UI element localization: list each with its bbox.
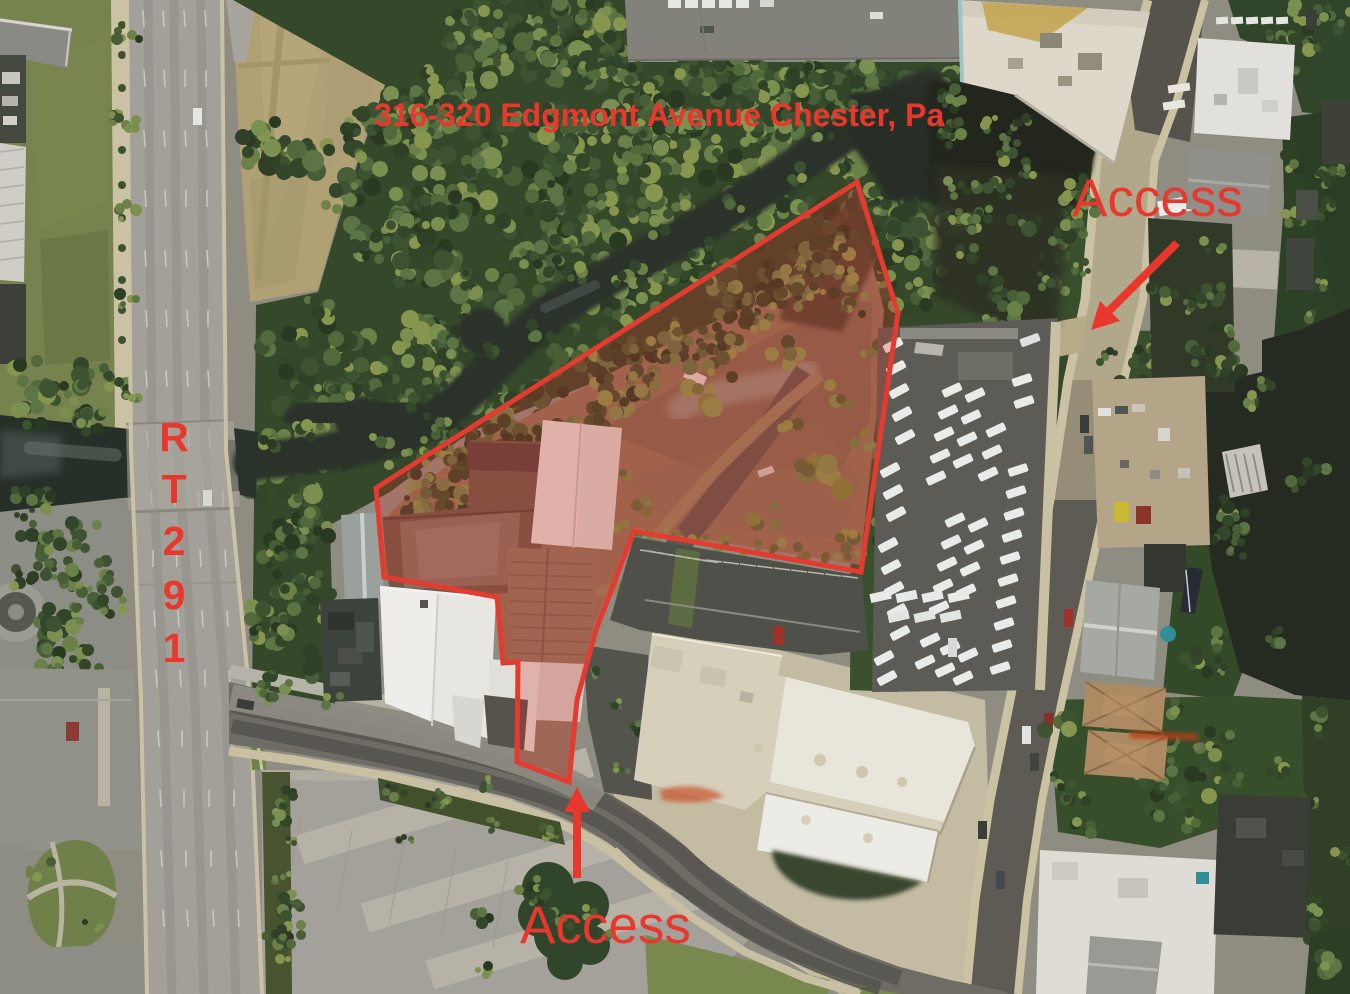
svg-text:9: 9: [163, 572, 186, 618]
svg-text:1: 1: [163, 625, 186, 671]
svg-text:R: R: [159, 414, 189, 460]
svg-text:Access: Access: [1072, 169, 1243, 228]
svg-text:316-320 Edgmont Avenue Chester: 316-320 Edgmont Avenue Chester, Pa: [374, 97, 944, 133]
svg-text:T: T: [161, 466, 186, 512]
svg-text:2: 2: [163, 518, 186, 564]
svg-text:Access: Access: [520, 896, 691, 955]
